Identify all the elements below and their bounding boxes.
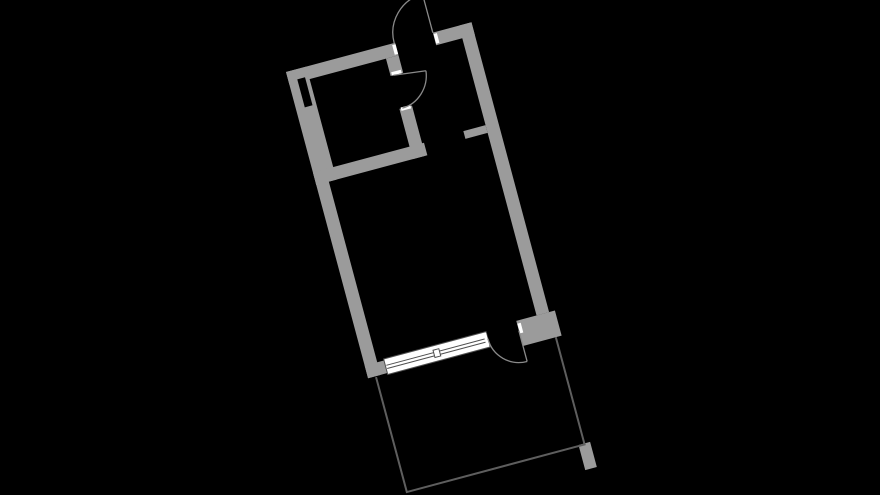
window-mullion — [433, 349, 441, 358]
floorplan-canvas — [0, 0, 880, 495]
background — [0, 0, 880, 495]
floorplan-svg — [0, 0, 880, 495]
